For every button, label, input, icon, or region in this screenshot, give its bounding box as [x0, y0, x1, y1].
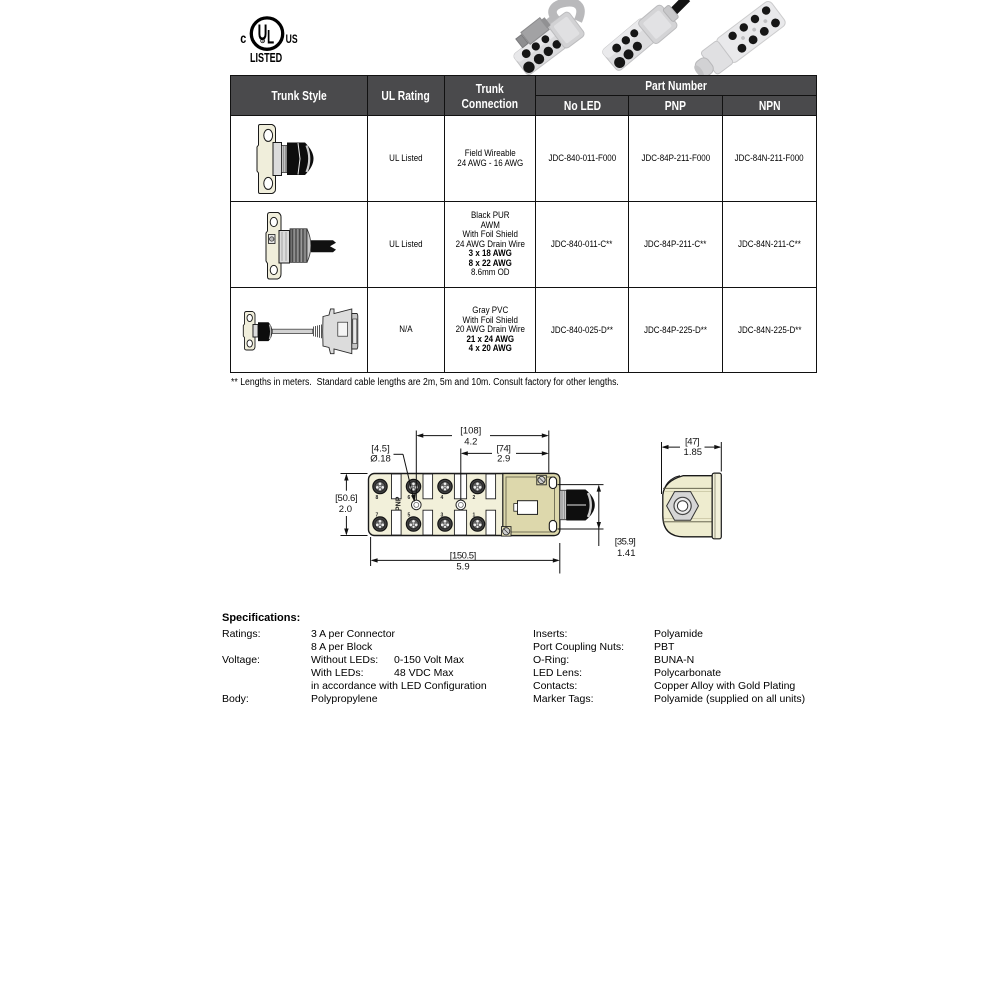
- svg-text:[108]: [108]: [460, 426, 481, 437]
- svg-text:US: US: [286, 34, 298, 46]
- svg-text:PNP: PNP: [396, 496, 403, 511]
- svg-text:c: c: [240, 31, 246, 46]
- svg-text:5: 5: [408, 513, 411, 519]
- svg-text:1.85: 1.85: [684, 447, 703, 458]
- svg-text:4: 4: [441, 495, 444, 501]
- svg-text:L: L: [267, 27, 274, 49]
- svg-text:2.9: 2.9: [497, 453, 510, 464]
- svg-text:2: 2: [473, 495, 476, 501]
- svg-text:7: 7: [376, 513, 379, 519]
- svg-text:Ø.18: Ø.18: [370, 454, 391, 465]
- svg-text:[150.5]: [150.5]: [450, 550, 477, 561]
- svg-text:[47]: [47]: [685, 436, 700, 447]
- svg-text:1.41: 1.41: [617, 548, 636, 559]
- svg-text:5.9: 5.9: [456, 562, 469, 573]
- svg-text:8: 8: [376, 495, 379, 501]
- svg-text:[50.6]: [50.6]: [335, 493, 358, 504]
- svg-text:[35.9]: [35.9]: [615, 537, 636, 548]
- svg-text:3: 3: [441, 513, 444, 519]
- svg-text:1: 1: [473, 513, 476, 519]
- svg-text:2.0: 2.0: [339, 504, 352, 515]
- svg-text:6: 6: [408, 495, 411, 501]
- svg-text:LISTED: LISTED: [250, 51, 282, 65]
- svg-text:4.2: 4.2: [464, 437, 477, 448]
